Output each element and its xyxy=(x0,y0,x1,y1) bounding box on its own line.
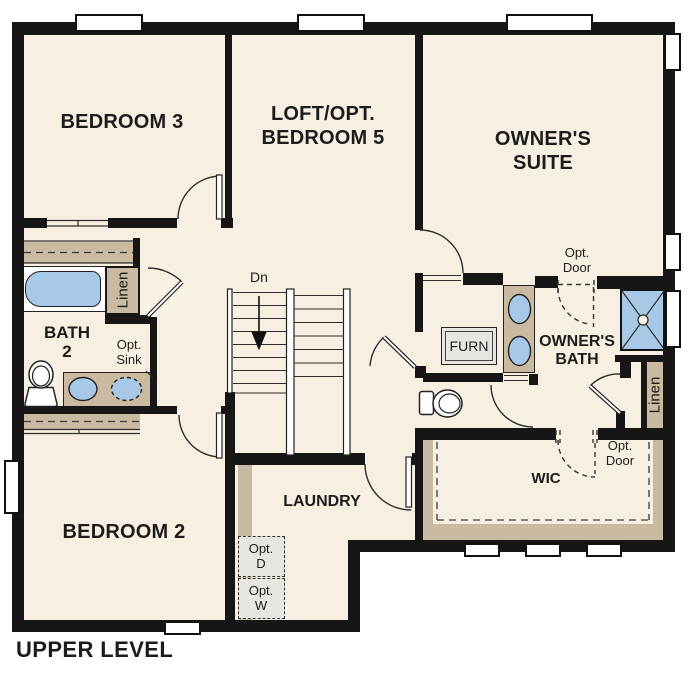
down-arrow xyxy=(252,296,266,349)
label-optional-dryer: Opt.D xyxy=(249,541,274,571)
optional-sink xyxy=(112,378,142,401)
floor-plan: BEDROOM 3 LOFT/OPT.BEDROOM 5 OWNER'SSUIT… xyxy=(0,0,687,687)
label-optional-washer: Opt.W xyxy=(249,583,274,613)
stair-rail xyxy=(344,289,351,455)
room-label-laundry: LAUNDRY xyxy=(283,493,361,511)
door-leaf xyxy=(590,386,620,413)
label-stairs-down: Dn xyxy=(250,269,268,286)
closet-opening-bedroom2 xyxy=(24,430,140,434)
room-label-loft: LOFT/OPT.BEDROOM 5 xyxy=(262,102,385,150)
sink xyxy=(509,295,531,324)
window xyxy=(664,233,681,271)
optional-door-wic xyxy=(556,430,597,477)
sink xyxy=(69,378,97,401)
label-linen-owner: Linen xyxy=(647,377,664,414)
toilet xyxy=(25,361,57,407)
page-title: UPPER LEVEL xyxy=(16,637,173,663)
window xyxy=(506,14,593,32)
window xyxy=(665,290,681,348)
window xyxy=(586,543,622,557)
window xyxy=(464,543,500,557)
window xyxy=(164,621,201,635)
label-furnace: FURN xyxy=(450,338,489,355)
door-arc-bath-wic xyxy=(590,374,620,386)
optional-sink-leader xyxy=(146,371,153,378)
label-optional-door-wic: Opt.Door xyxy=(606,438,634,468)
door-leaf xyxy=(148,282,182,316)
door-leaf xyxy=(217,175,223,219)
label-optional-door-suite: Opt.Door xyxy=(563,245,591,275)
door-leaf xyxy=(217,413,223,458)
room-label-owners-suite: OWNER'SSUITE xyxy=(495,127,591,175)
shower-detail xyxy=(622,291,664,349)
stair-rail xyxy=(228,289,233,393)
door-arc-hall-passage xyxy=(370,337,384,366)
room-label-bath2: BATH2 xyxy=(44,323,90,361)
window xyxy=(297,14,365,32)
door-sills xyxy=(423,276,528,381)
door-arc-owners-suite xyxy=(420,230,463,273)
window xyxy=(664,33,681,71)
door-arc-owners-bath xyxy=(491,385,533,427)
toilet xyxy=(420,390,463,417)
door-leaf xyxy=(406,457,412,507)
label-linen-hall: Linen xyxy=(114,272,131,309)
optional-door-owners-suite xyxy=(558,280,594,327)
room-label-owners-bath: OWNER'SBATH xyxy=(539,333,615,368)
door-arc-laundry xyxy=(365,464,411,510)
door-arc-bedroom2 xyxy=(179,415,221,457)
window xyxy=(4,460,20,514)
staircase xyxy=(228,289,351,455)
door-leaf xyxy=(384,337,415,367)
closet-opening-bedroom3 xyxy=(47,218,108,228)
room-label-wic: WIC xyxy=(531,470,560,488)
label-optional-sink: Opt.Sink xyxy=(116,337,141,367)
room-label-bedroom3: BEDROOM 3 xyxy=(61,110,184,134)
window xyxy=(75,14,143,32)
stair-rail xyxy=(287,289,295,455)
room-label-bedroom2: BEDROOM 2 xyxy=(63,520,186,544)
sink xyxy=(509,337,531,366)
window xyxy=(525,543,561,557)
door-arc-bath2 xyxy=(148,268,182,282)
door-arc-bedroom3 xyxy=(178,176,221,219)
